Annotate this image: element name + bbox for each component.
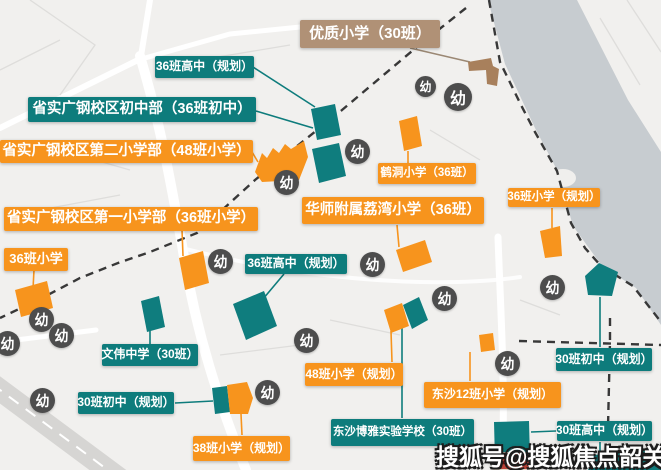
label-huashi: 华师附属荔湾小学（36班） [302, 197, 484, 224]
kindergarten-marker: 幼 [360, 252, 385, 277]
kindergarten-marker: 幼 [540, 275, 565, 300]
site-junior-b [312, 143, 346, 183]
label-youzhi: 优质小学（30班） [300, 20, 440, 48]
site-xs36-planned [540, 226, 562, 258]
label-planned-jh-left: 30班初中（规划） [78, 392, 174, 414]
label-shengshi-primary2: 省实广钢校区第二小学部（48班小学） [0, 140, 253, 163]
site-primary1 [179, 251, 209, 290]
kindergarten-marker: 幼 [345, 139, 370, 164]
site-youzhi [468, 58, 499, 86]
kindergarten-marker: 幼 [415, 76, 436, 97]
site-wenwei [141, 296, 165, 332]
label-xs48-planned: 48班小学（规划） [305, 363, 403, 386]
site-planned-hs-mid [233, 291, 277, 340]
label-shengshi-primary1: 省实广钢校区第一小学部（36班小学） [4, 207, 258, 231]
kindergarten-marker: 幼 [274, 170, 299, 195]
education-resources-map: 36班高中（规划） 省实广钢校区初中部（36班初中） 省实广钢校区第二小学部（4… [0, 0, 661, 470]
label-planned-hs-mid: 36班高中（规划） [245, 254, 347, 274]
label-planned-hs-top: 36班高中（规划） [155, 56, 254, 78]
kindergarten-marker: 幼 [49, 323, 74, 348]
kindergarten-marker: 幼 [495, 351, 520, 376]
site-hedong [399, 116, 422, 151]
kindergarten-marker: 幼 [432, 286, 457, 311]
site-dongsha12 [479, 333, 495, 352]
label-xs36-planned: 36班小学（规划） [508, 188, 600, 207]
kindergarten-marker: 幼 [444, 83, 472, 111]
site-huashi [396, 240, 432, 272]
kindergarten-marker: 幼 [30, 388, 55, 413]
label-shengshi-junior: 省实广钢校区初中部（36班初中） [28, 97, 256, 122]
kindergarten-marker: 幼 [208, 249, 233, 274]
label-xs38-planned: 38班小学（规划） [193, 436, 290, 461]
site-planned-jh-left [212, 386, 230, 414]
label-xs36-left: 36班小学 [4, 248, 68, 271]
river-island [550, 169, 576, 187]
site-junior-a [311, 104, 341, 140]
kindergarten-marker: 幼 [255, 380, 280, 405]
label-dongsha12: 东沙12班小学（规划） [424, 382, 561, 408]
site-xs38-planned [227, 382, 253, 414]
label-hedong: 鹤洞小学（36班） [378, 163, 476, 184]
label-planned-jh-right: 30班初中（规划） [556, 348, 652, 371]
watermark: 搜狐号@搜狐焦点韶关站 [436, 438, 661, 470]
label-wenwei: 文伟中学（30班） [102, 344, 198, 366]
kindergarten-marker: 幼 [294, 328, 319, 353]
